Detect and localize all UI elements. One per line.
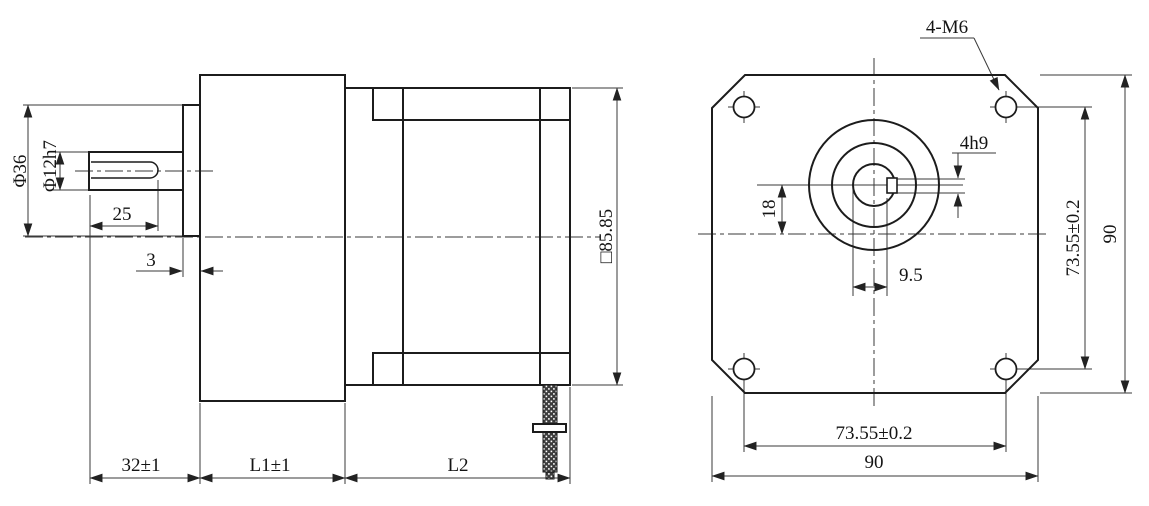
dim-frame-size: □85.85 bbox=[596, 209, 617, 263]
dim-hole-pitch-horizontal: 73.55±0.2 bbox=[836, 423, 913, 444]
drawing-canvas: Φ36 Φ12h7 25 3 32±1 L1±1 L2 □85.85 bbox=[0, 0, 1149, 506]
side-view: Φ36 Φ12h7 25 3 32±1 L1±1 L2 □85.85 bbox=[10, 75, 623, 484]
front-view: 4-M6 4h9 18 9.5 73.55±0.2 90 73.55±0.2 9… bbox=[698, 17, 1132, 482]
mounting-hole-top-left bbox=[734, 97, 755, 118]
leader-mounting-holes bbox=[974, 38, 999, 90]
dim-keyway-width: 4h9 bbox=[960, 133, 989, 154]
mounting-hole-bottom-right bbox=[996, 359, 1017, 380]
dim-hole-pitch-vertical: 73.55±0.2 bbox=[1063, 200, 1084, 277]
dim-boss-diameter: Φ36 bbox=[10, 155, 31, 188]
dim-body-height: 90 bbox=[1100, 225, 1121, 244]
dim-body-width: 90 bbox=[865, 452, 884, 473]
dim-mounting-holes: 4-M6 bbox=[926, 17, 968, 38]
mounting-hole-bottom-left bbox=[734, 359, 755, 380]
mounting-hole-top-right bbox=[996, 97, 1017, 118]
shaft-keyway bbox=[91, 162, 158, 178]
dim-shaft-offset: 18 bbox=[759, 200, 780, 219]
cable-clamp bbox=[533, 424, 566, 432]
motor-endcap-lines bbox=[373, 88, 570, 385]
front-keyway bbox=[887, 178, 897, 193]
dim-shaft-length: 32±1 bbox=[122, 455, 161, 476]
dim-gearbox-length: L1±1 bbox=[249, 455, 290, 476]
dim-keyway-length: 25 bbox=[113, 204, 132, 225]
dim-shaft-diameter: Φ12h7 bbox=[40, 140, 61, 192]
cable-tail bbox=[546, 472, 554, 479]
gearbox-outline bbox=[200, 75, 345, 401]
dim-keyway-flat: 9.5 bbox=[899, 265, 923, 286]
dim-spacer-width: 3 bbox=[146, 250, 156, 271]
dim-motor-length: L2 bbox=[447, 455, 468, 476]
engineering-drawing: Φ36 Φ12h7 25 3 32±1 L1±1 L2 □85.85 bbox=[0, 0, 1149, 506]
